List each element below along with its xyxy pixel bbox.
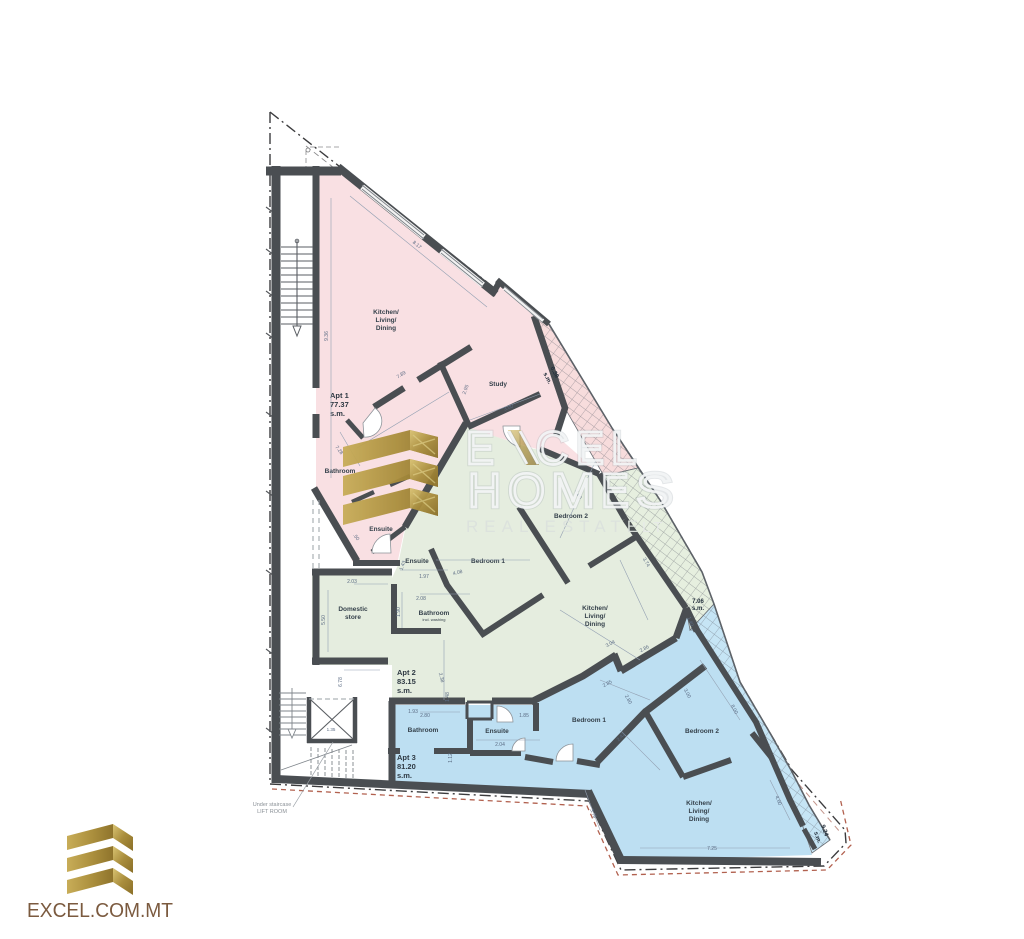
svg-text:S: S [636,465,673,518]
svg-text:Dining: Dining [689,816,709,823]
svg-text:M: M [551,465,595,518]
svg-text:LIFT ROOM: LIFT ROOM [257,809,287,815]
svg-text:Bedroom 1: Bedroom 1 [572,717,606,724]
svg-text:1.48: 1.48 [445,692,451,702]
svg-text:Living/: Living/ [585,613,606,620]
svg-text:5.50: 5.50 [321,615,327,625]
svg-text:store: store [345,614,361,621]
svg-text:Apt 3: Apt 3 [397,753,416,762]
svg-text:1.93: 1.93 [408,709,418,715]
svg-text:1.85: 1.85 [519,713,529,719]
svg-text:Domestic: Domestic [338,606,368,613]
svg-text:2.04: 2.04 [495,742,505,748]
svg-text:s.m.: s.m. [397,686,412,695]
svg-text:Living/: Living/ [376,317,397,324]
svg-text:1.35: 1.35 [327,727,336,732]
svg-text:7.06: 7.06 [692,599,704,605]
svg-text:81.20: 81.20 [397,762,416,771]
svg-text:2.03: 2.03 [347,579,357,585]
svg-text:EXCEL.COM.MT: EXCEL.COM.MT [27,899,173,922]
svg-text:Kitchen/: Kitchen/ [686,800,712,807]
svg-text:1.12: 1.12 [448,753,454,763]
svg-text:1.97: 1.97 [419,574,429,580]
svg-text:Bathroom: Bathroom [408,727,439,734]
svg-text:Under staircase: Under staircase [253,802,292,808]
svg-text:7.25: 7.25 [707,846,717,852]
svg-text:Ensuite: Ensuite [485,728,509,735]
svg-text:Dining: Dining [376,325,396,332]
svg-text:77.37: 77.37 [330,400,349,409]
svg-text:Study: Study [489,381,507,388]
svg-text:O: O [508,465,545,518]
svg-text:Dining: Dining [585,621,605,628]
svg-text:Bedroom 2: Bedroom 2 [685,728,719,735]
svg-text:s.m.: s.m. [397,771,412,780]
svg-text:incl. washing: incl. washing [423,617,446,622]
svg-text:2.08: 2.08 [416,596,426,602]
svg-text:LT: LT [642,519,666,536]
svg-text:Ensuite: Ensuite [405,558,429,565]
svg-text:Ensuite: Ensuite [369,526,393,533]
svg-text:Apt 1: Apt 1 [330,391,349,400]
svg-text:83.15: 83.15 [397,677,416,686]
svg-text:9.36: 9.36 [324,331,330,341]
svg-text:s.m.: s.m. [330,409,345,418]
svg-text:Kitchen/: Kitchen/ [582,605,608,612]
svg-text:2.80: 2.80 [420,713,430,719]
svg-text:1.90: 1.90 [396,607,402,617]
svg-text:Apt 2: Apt 2 [397,668,416,677]
svg-text:E: E [601,465,629,518]
svg-text:Bathroom: Bathroom [419,610,450,617]
svg-text:Kitchen/: Kitchen/ [373,309,399,316]
svg-text:Living/: Living/ [689,808,710,815]
svg-text:H: H [468,465,501,518]
svg-text:6.78: 6.78 [338,677,344,687]
svg-text:REAL ESTATE: REAL ESTATE [466,517,644,536]
svg-text:s.m.: s.m. [692,606,704,612]
svg-text:Bathroom: Bathroom [325,468,356,475]
svg-text:Bedroom 1: Bedroom 1 [471,558,505,565]
